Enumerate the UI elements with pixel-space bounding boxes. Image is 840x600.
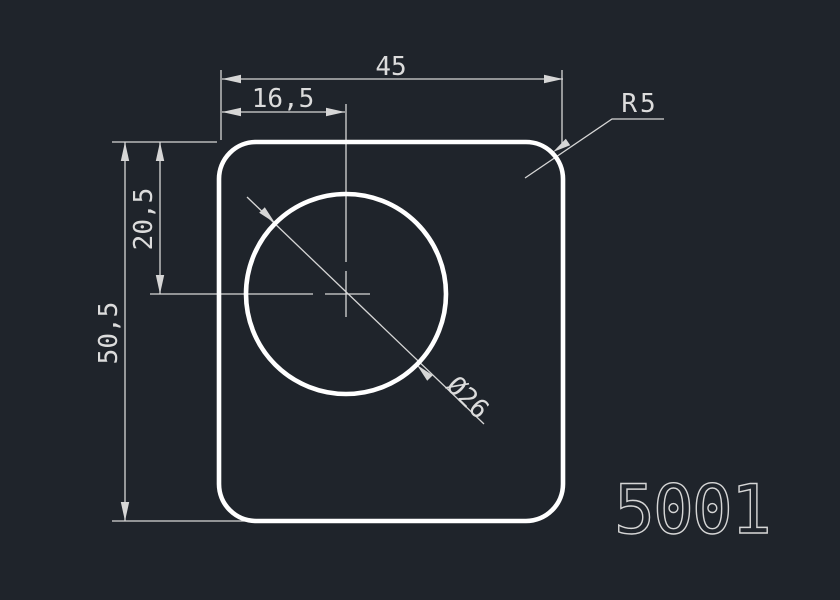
dimension-texts: 45 16,5 20,5 50,5 R5 Ø26	[94, 52, 659, 425]
part-geometry	[219, 142, 563, 521]
arrowhead-height-top	[121, 142, 129, 161]
cad-drawing-canvas: 45 16,5 20,5 50,5 R5 Ø26 5001	[0, 0, 840, 600]
arrowhead-width-right	[544, 75, 563, 83]
arrowhead-diameter-upper	[259, 207, 275, 223]
arrowhead-offsety-top	[156, 142, 164, 161]
part-number-text: 5001	[614, 471, 770, 550]
arrowhead-offsetx-left	[222, 108, 241, 116]
width-dimension-text: 45	[375, 52, 406, 82]
arrowhead-width-left	[222, 75, 241, 83]
corner-radius-text: R5	[621, 89, 658, 119]
hole-offset-x-dimension-text: 16,5	[252, 84, 315, 114]
dimension-lines	[112, 70, 664, 521]
arrowhead-offsetx-right	[326, 108, 345, 116]
hole-diameter-text: Ø26	[440, 371, 494, 425]
arrowhead-height-bottom	[121, 502, 129, 521]
part-outline	[219, 142, 563, 521]
height-dimension-text: 50,5	[94, 302, 124, 365]
hole-offset-y-dimension-text: 20,5	[129, 188, 159, 251]
arrowhead-offsety-bottom	[156, 275, 164, 294]
cad-drawing: 45 16,5 20,5 50,5 R5 Ø26 5001	[0, 0, 840, 600]
